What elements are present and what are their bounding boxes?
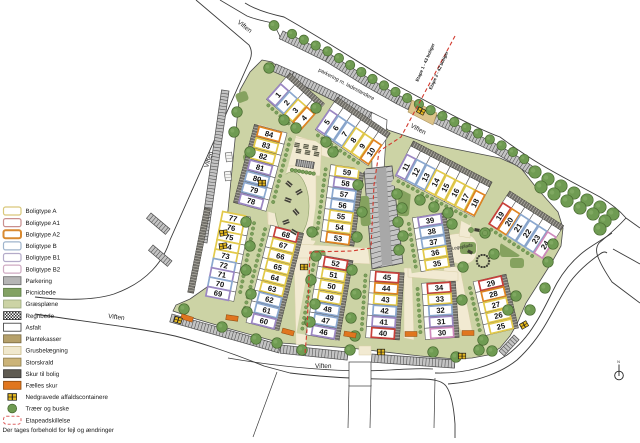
svg-text:Plantekasser: Plantekasser	[26, 336, 62, 343]
svg-text:Boligtype B1: Boligtype B1	[26, 255, 61, 262]
svg-text:46: 46	[319, 327, 329, 337]
svg-text:31: 31	[437, 317, 447, 327]
svg-text:42: 42	[380, 306, 389, 316]
svg-text:44: 44	[382, 284, 392, 294]
svg-text:59: 59	[342, 167, 352, 177]
svg-text:Græsplæne: Græsplæne	[26, 301, 59, 308]
svg-text:40: 40	[378, 329, 387, 339]
svg-text:Etapeadskillelse: Etapeadskillelse	[26, 417, 71, 424]
svg-text:49: 49	[325, 293, 335, 303]
svg-text:Parkering: Parkering	[26, 278, 53, 285]
svg-text:Storskrald: Storskrald	[26, 359, 54, 366]
svg-text:58: 58	[341, 178, 351, 188]
svg-text:38: 38	[427, 226, 437, 236]
svg-text:52: 52	[331, 258, 341, 268]
svg-text:Boligtype A1: Boligtype A1	[26, 220, 61, 227]
svg-text:Viften: Viften	[315, 363, 332, 370]
svg-text:47: 47	[321, 316, 331, 326]
svg-text:Grusbelægning: Grusbelægning	[26, 348, 69, 355]
svg-text:Picnicbede: Picnicbede	[26, 290, 57, 297]
svg-text:43: 43	[381, 295, 390, 305]
svg-text:50: 50	[327, 281, 337, 291]
svg-text:Fælles skur: Fælles skur	[26, 383, 58, 390]
svg-text:33: 33	[435, 294, 444, 304]
svg-text:Boligtype A2: Boligtype A2	[26, 231, 61, 238]
svg-text:Træer og buske: Træer og buske	[26, 406, 70, 413]
svg-text:57: 57	[339, 189, 349, 199]
svg-text:Boligtype B: Boligtype B	[26, 243, 57, 250]
svg-text:Nedgravede affaldscontainere: Nedgravede affaldscontainere	[26, 394, 109, 401]
svg-text:Der tages forbehold for fejl o: Der tages forbehold for fejl og ændringe…	[3, 427, 114, 434]
svg-text:Boligtype A: Boligtype A	[26, 208, 58, 215]
svg-text:36: 36	[430, 248, 440, 258]
svg-text:48: 48	[323, 304, 333, 314]
svg-text:56: 56	[338, 200, 348, 210]
svg-text:45: 45	[382, 273, 392, 283]
svg-text:41: 41	[379, 317, 389, 327]
svg-text:30: 30	[437, 328, 446, 338]
svg-text:Regnbede: Regnbede	[26, 313, 55, 320]
svg-text:32: 32	[436, 306, 445, 316]
svg-text:Boligtype B2: Boligtype B2	[26, 266, 61, 273]
svg-text:37: 37	[429, 237, 439, 247]
svg-text:N: N	[617, 360, 620, 364]
svg-text:Skur til bolig: Skur til bolig	[26, 371, 60, 378]
svg-text:69: 69	[213, 288, 223, 298]
svg-text:34: 34	[434, 283, 444, 293]
svg-text:Asfalt: Asfalt	[26, 324, 42, 331]
svg-text:53: 53	[333, 233, 343, 243]
svg-text:39: 39	[425, 215, 435, 225]
